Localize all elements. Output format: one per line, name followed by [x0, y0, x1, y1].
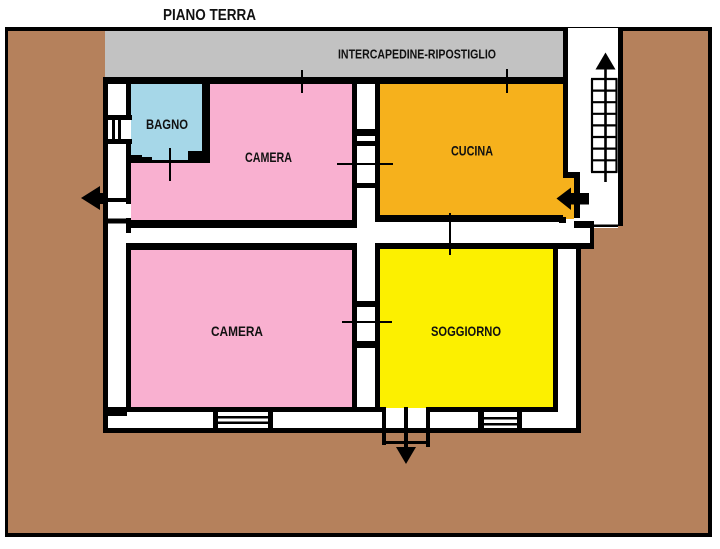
svg-text:BAGNO: BAGNO — [146, 116, 188, 132]
svg-text:PIANO TERRA: PIANO TERRA — [163, 7, 256, 24]
svg-text:INTERCAPEDINE-RIPOSTIGLIO: INTERCAPEDINE-RIPOSTIGLIO — [338, 48, 496, 62]
svg-text:CAMERA: CAMERA — [245, 149, 292, 165]
svg-text:CUCINA: CUCINA — [451, 143, 493, 159]
svg-text:SOGGIORNO: SOGGIORNO — [431, 323, 501, 339]
svg-text:CAMERA: CAMERA — [211, 323, 263, 339]
